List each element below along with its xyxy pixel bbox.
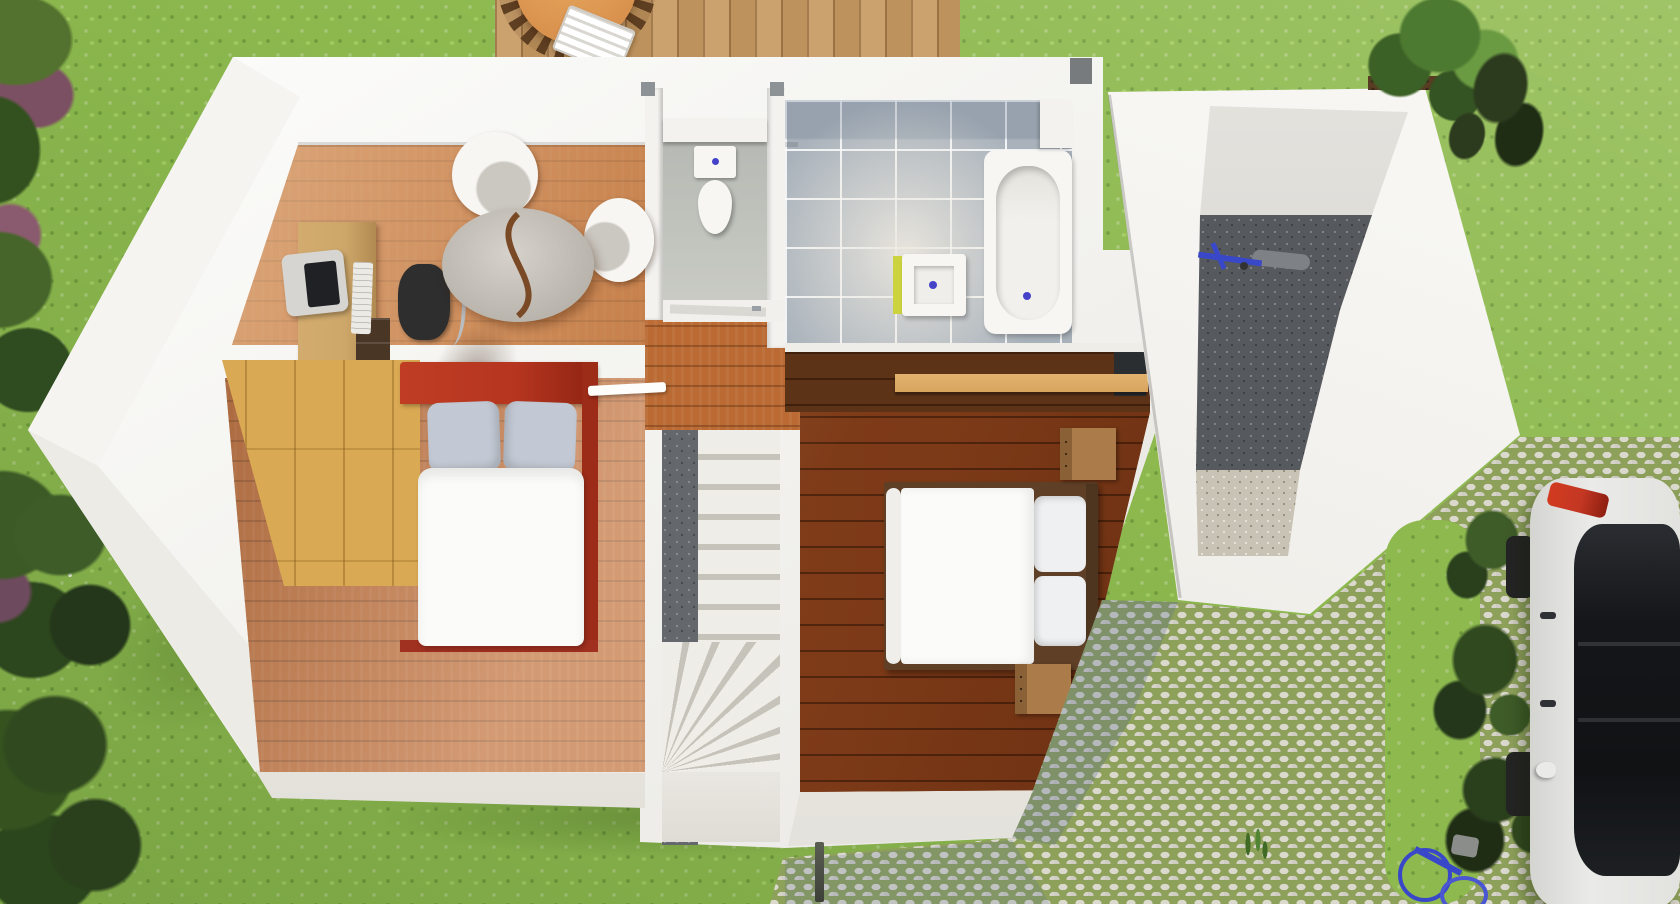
bed2-pillow-top — [1034, 496, 1086, 572]
toilet-button — [712, 158, 719, 165]
bed1-headboard — [400, 362, 596, 404]
bed1-pillow-right — [503, 401, 577, 473]
car-roof-seam-1 — [1578, 642, 1680, 646]
car-mirror — [1536, 762, 1556, 778]
car-roof-seam-2 — [1578, 718, 1680, 722]
washbasin-drain — [929, 281, 937, 289]
bed2-pillow-bottom — [1034, 576, 1086, 646]
garage-bike-pedal — [1240, 262, 1248, 270]
bed1-frame-right — [582, 362, 598, 650]
wc-door-handle — [752, 306, 761, 311]
wc-shelf — [663, 118, 767, 142]
wc-wall-post-right — [770, 82, 784, 96]
coffee-table-divider — [442, 208, 594, 322]
coffee-table — [442, 208, 594, 322]
car-door-handle-2 — [1540, 700, 1556, 707]
bed1-duvet — [418, 468, 584, 646]
car-glass-roof — [1574, 524, 1680, 876]
bathtub-drain — [1023, 292, 1031, 300]
stair-landing — [662, 772, 780, 842]
armchair-top — [452, 132, 538, 218]
wc-wall-left — [645, 88, 663, 320]
closet-shelf — [895, 374, 1148, 392]
bed2-bolster — [886, 488, 901, 664]
armchair-right — [584, 198, 654, 282]
stair-treads — [698, 430, 780, 642]
stair-winders — [662, 642, 780, 772]
monitor-screen — [304, 260, 340, 307]
nightstand-bottom — [1015, 664, 1071, 714]
chimney-notch — [1070, 58, 1092, 84]
driveway-grass-tuft — [1238, 820, 1272, 866]
scene-floor-plan-render — [0, 0, 1680, 904]
nightstand-top — [1060, 428, 1116, 480]
bathroom-ledge — [1040, 100, 1072, 148]
wc-wall-post-left — [641, 82, 655, 96]
desk-keyboard — [351, 262, 374, 335]
garden-stake — [815, 842, 824, 902]
bed1-pillow-left — [427, 401, 501, 473]
driveway-bike-bag — [1450, 834, 1479, 858]
bed2-duvet — [901, 488, 1034, 664]
car-door-handle-1 — [1540, 612, 1556, 619]
